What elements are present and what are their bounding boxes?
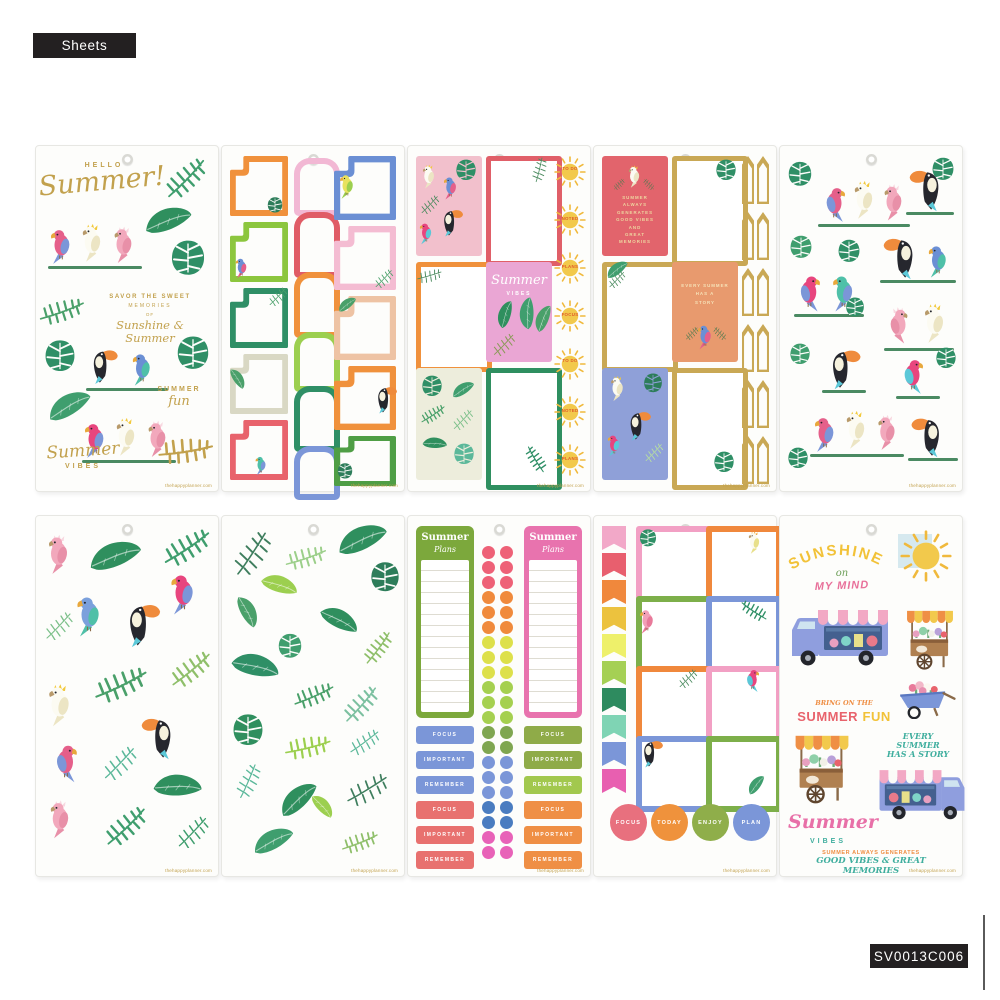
- story-line-1: EVERY SUMMER: [880, 732, 956, 750]
- plans-header-1: Summer: [416, 532, 474, 543]
- dot-stickers: [482, 786, 516, 799]
- fun-word: FUN: [863, 709, 891, 724]
- parrot-icon: [254, 456, 268, 476]
- sheet-note-boxes: FOCUS TODAY ENJOY PLAN thehappyplanner.c…: [593, 515, 777, 877]
- palm-leaf-icon: [340, 825, 381, 859]
- dot-stickers: [482, 771, 516, 784]
- monstera-leaf-icon: [786, 446, 810, 470]
- cockatoo-icon: [44, 682, 74, 730]
- dot-stickers: [482, 666, 516, 679]
- branch: [908, 458, 958, 461]
- plans-header-2: Plans: [416, 545, 474, 554]
- dot-stickers: [482, 726, 516, 739]
- sheet-gold-panels: SUMMER ALWAYS GENERATES GOOD VIBES AND G…: [593, 145, 777, 492]
- toucan-icon: [908, 166, 948, 212]
- summer-vibes-2: VIBES: [40, 463, 126, 471]
- banana-leaf-icon: [257, 565, 302, 603]
- watermark: thehappyplanner.com: [165, 483, 212, 488]
- sheet-sunshine: SUNSHINE on MY MIND BRING ON THE SUMMER …: [779, 515, 963, 877]
- coral-line: GREAT: [604, 233, 666, 237]
- cockatoo-icon: [746, 530, 762, 556]
- dot-stickers: [482, 756, 516, 769]
- label-sticker: FOCUS: [524, 801, 582, 819]
- gold-arrow-sticker: [757, 212, 769, 260]
- branch: [822, 390, 866, 393]
- monstera-leaf-icon: [642, 372, 664, 394]
- gold-arrow-sticker: [742, 212, 754, 260]
- yellow-bird-icon: [338, 174, 356, 200]
- palm-leaf-icon: [356, 629, 399, 667]
- palm-leaf-icon: [420, 404, 446, 424]
- image-edge-line: [983, 915, 985, 990]
- dot-stickers: [482, 816, 516, 829]
- parrot-icon: [900, 358, 926, 396]
- flower-cart: [902, 606, 958, 670]
- dot-stickers: [482, 576, 516, 589]
- product-gallery-image: { "page": { "top_badge": "Sheets", "sku_…: [0, 0, 1000, 1000]
- summer-fun-2: fun: [148, 395, 210, 410]
- coral-line: SUMMER: [604, 196, 666, 200]
- palm-leaf-icon: [91, 660, 150, 707]
- watermark: thehappyplanner.com: [723, 868, 770, 873]
- savor-line-1: SAVOR THE SWEET: [90, 294, 210, 301]
- my-mind-text: MY MIND: [802, 579, 882, 594]
- banana-leaf-icon: [41, 385, 97, 425]
- note-box: [706, 526, 782, 602]
- note-box: [636, 666, 712, 742]
- coral-line: ALWAYS: [604, 203, 666, 207]
- monstera-leaf-icon: [276, 632, 304, 660]
- sun-icon: [554, 348, 586, 380]
- ice-cream-truck: [876, 764, 968, 824]
- dotted-note-panel: [486, 368, 562, 490]
- banana-leaf-icon: [150, 767, 206, 804]
- palm-leaf-icon: [337, 683, 386, 725]
- toucan-icon: [638, 738, 664, 768]
- wheelbarrow: [894, 680, 956, 719]
- coral-line: AND: [604, 226, 666, 230]
- toucan-icon: [824, 346, 862, 390]
- sheet-birds-leaves: thehappyplanner.com: [35, 515, 219, 877]
- dot-stickers: [482, 741, 516, 754]
- circle-sticker: TODAY: [651, 804, 688, 841]
- toucan-icon: [882, 234, 922, 280]
- monstera-leaf-icon: [266, 196, 284, 214]
- sun-label: PLANS: [557, 456, 583, 461]
- sheet-leaves: thehappyplanner.com: [221, 515, 405, 877]
- parrot-icon: [796, 274, 823, 314]
- monstera-leaf-icon: [174, 334, 212, 372]
- dot-stickers: [482, 636, 516, 649]
- fern-leaf-icon: [348, 724, 383, 759]
- pink-cockatoo-icon: [874, 412, 899, 454]
- label-sticker: IMPORTANT: [416, 826, 474, 844]
- fern-leaf-icon: [610, 178, 628, 190]
- summer-vibes-block: Summer VIBES: [40, 442, 126, 471]
- summer-script-title: Summer!: [35, 160, 169, 202]
- toucan-icon: [140, 714, 180, 760]
- monstera-leaf-icon: [168, 238, 208, 278]
- palm-leaf-icon: [37, 289, 88, 332]
- gold-arrow-sticker: [757, 156, 769, 204]
- summer-vibes-1: Summer: [39, 439, 126, 464]
- dot-stickers: [482, 681, 516, 694]
- cockatoo-icon: [608, 374, 626, 404]
- label-sticker: IMPORTANT: [416, 751, 474, 769]
- savor-line-2: MEMORIES: [90, 304, 210, 310]
- pink-cockatoo-icon: [886, 304, 912, 348]
- flag-sticker: [602, 580, 626, 604]
- parrot-icon: [130, 352, 154, 388]
- dot-stickers: [482, 696, 516, 709]
- palm-leaf-icon: [740, 600, 768, 621]
- parrot-icon: [638, 608, 656, 636]
- watermark: thehappyplanner.com: [723, 483, 770, 488]
- dot-stickers: [482, 621, 516, 634]
- on-text: on: [830, 568, 854, 580]
- summer-fun-row: SUMMER FUN: [792, 708, 896, 726]
- circle-sticker: ENJOY: [692, 804, 729, 841]
- label-sticker: FOCUS: [416, 726, 474, 744]
- monstera-leaf-icon: [934, 346, 958, 370]
- summer-fun-1: SUMMER: [148, 386, 210, 394]
- palm-leaf-icon: [162, 528, 212, 566]
- flag-sticker: [602, 526, 626, 550]
- panel-vibes-2: VIBES: [486, 292, 552, 298]
- panel-vibes-1: Summer: [486, 274, 552, 289]
- flag-sticker: [602, 553, 626, 577]
- sun-label: TO DO: [557, 358, 583, 363]
- gold-arrow-sticker: [757, 436, 769, 484]
- banana-leaf-icon: [140, 203, 195, 237]
- banana-leaf-icon: [316, 597, 364, 643]
- plans-header-2: Plans: [524, 545, 582, 554]
- dot-stickers: [482, 561, 516, 574]
- gold-arrow-sticker: [757, 324, 769, 372]
- gold-arrow-sticker: [742, 436, 754, 484]
- pink-cockatoo-icon: [880, 182, 906, 224]
- watermark: thehappyplanner.com: [165, 868, 212, 873]
- savor-line-3: OF: [90, 312, 210, 317]
- parrot-icon: [168, 574, 198, 616]
- peach-line: EVERY SUMMER: [674, 284, 736, 288]
- summer-word: SUMMER: [797, 709, 858, 724]
- label-sticker: IMPORTANT: [524, 751, 582, 769]
- label-sticker: IMPORTANT: [524, 826, 582, 844]
- dot-stickers: [482, 831, 516, 844]
- watermark: thehappyplanner.com: [909, 483, 956, 488]
- sheet-hello-summer: HELLO Summer! SAVOR THE SWEET MEMORIES O…: [35, 145, 219, 492]
- palm-leaf-icon: [292, 677, 337, 713]
- dot-stickers: [482, 711, 516, 724]
- branch: [880, 280, 956, 283]
- label-sticker: REMEMBER: [416, 776, 474, 794]
- branch: [896, 396, 940, 399]
- punch-hole: [308, 524, 319, 535]
- fern-leaf-icon: [644, 442, 664, 462]
- gold-arrow-sticker: [757, 268, 769, 316]
- fern-leaf-icon: [176, 814, 210, 848]
- fern-leaf-icon: [374, 268, 394, 288]
- banana-leaf-icon: [309, 789, 338, 823]
- monstera-leaf-icon: [714, 158, 738, 182]
- sun-label: TO DO: [557, 166, 583, 171]
- fern-leaf-icon: [640, 178, 658, 190]
- checklist-lines: [529, 560, 577, 712]
- flag-sticker: [602, 742, 626, 766]
- gold-dotted-panel: [672, 368, 748, 490]
- monstera-leaf-icon: [368, 560, 402, 594]
- fern-leaf-icon: [452, 408, 474, 430]
- sheet-tropical-panels: Summer VIBES TO DO NOTED PLANS FOCUS TO …: [407, 145, 591, 492]
- ice-cream-truck: [788, 604, 892, 670]
- fern-leaf-icon: [492, 332, 516, 356]
- cockatoo-icon: [78, 220, 105, 267]
- note-box: [706, 736, 782, 812]
- watermark: thehappyplanner.com: [537, 868, 584, 873]
- label-sticker: REMEMBER: [416, 851, 474, 869]
- parrot-icon: [48, 228, 74, 266]
- parrot-icon: [822, 186, 848, 224]
- toucan-icon: [910, 414, 948, 458]
- monstera-leaf-icon: [420, 374, 444, 398]
- palm-leaf-icon: [166, 650, 215, 689]
- fern-leaf-icon: [44, 610, 74, 640]
- coral-line: MEMORIES: [604, 240, 666, 244]
- flag-sticker: [602, 688, 626, 712]
- summer-script: Summer: [788, 812, 868, 834]
- label-sticker: REMEMBER: [524, 776, 582, 794]
- monstera-leaf-icon: [230, 712, 266, 748]
- monstera-leaf-icon: [452, 442, 476, 466]
- pink-cockatoo-icon: [44, 532, 72, 578]
- cockatoo-icon: [920, 300, 948, 348]
- monstera-leaf-icon: [336, 462, 354, 480]
- monstera-leaf-icon: [788, 342, 812, 366]
- story-line-2: HAS A STORY: [880, 750, 956, 759]
- monstera-leaf-icon: [712, 450, 736, 474]
- pink-cockatoo-icon: [46, 798, 73, 842]
- gold-arrow-sticker: [757, 380, 769, 428]
- flag-sticker: [602, 715, 626, 739]
- dot-stickers: [482, 606, 516, 619]
- gold-arrow-sticker: [742, 156, 754, 204]
- parrot-icon: [926, 244, 950, 280]
- fern-leaf-icon: [420, 194, 440, 214]
- dot-stickers: [482, 801, 516, 814]
- monstera-leaf-icon: [786, 160, 814, 188]
- gold-arrow-sticker: [742, 380, 754, 428]
- label-sticker: REMEMBER: [524, 851, 582, 869]
- gold-arrow-sticker: [742, 324, 754, 372]
- checklist-lines: [421, 560, 469, 712]
- monstera-leaf-icon: [788, 234, 814, 260]
- watermark: thehappyplanner.com: [909, 868, 956, 873]
- cockatoo-icon: [850, 177, 877, 224]
- parrot-icon: [744, 668, 761, 694]
- branch: [818, 224, 910, 227]
- sun-label: NOTED: [557, 216, 583, 221]
- toucan-icon: [86, 342, 119, 389]
- summer-plans-panel-green: Summer Plans: [416, 526, 474, 718]
- sun-icon: [900, 530, 952, 582]
- circle-sticker: PLAN: [733, 804, 770, 841]
- sheet-summer-plans: Summer Plans Summer Plans FOCUS IMPORTAN…: [407, 515, 591, 877]
- flag-sticker: [602, 607, 626, 631]
- sheet-frames: thehappyplanner.com: [221, 145, 405, 492]
- banana-leaf-icon: [84, 536, 146, 574]
- summer-plans-panel-pink: Summer Plans: [524, 526, 582, 718]
- vibes-text: VIBES: [788, 838, 868, 846]
- dot-stickers: [482, 651, 516, 664]
- gold-arrow-sticker: [742, 268, 754, 316]
- pink-cockatoo-icon: [110, 224, 136, 267]
- parrot-icon: [812, 416, 838, 454]
- toucan-icon: [120, 600, 162, 648]
- peach-line: STORY: [674, 301, 736, 305]
- sun-label: NOTED: [557, 408, 583, 413]
- sku-badge: SV0013C006: [870, 944, 968, 968]
- toucan-icon: [438, 206, 464, 238]
- monstera-leaf-icon: [836, 238, 862, 264]
- circle-sticker: FOCUS: [610, 804, 647, 841]
- memories-text: GOOD VIBES & GREAT MEMORIES: [790, 857, 952, 877]
- flag-sticker: [602, 634, 626, 658]
- banana-leaf-icon: [332, 518, 393, 558]
- toucan-icon: [372, 384, 398, 414]
- parrot-icon: [52, 744, 80, 784]
- palm-leaf-icon: [99, 804, 153, 848]
- sun-label: FOCUS: [557, 312, 583, 317]
- banana-leaf-icon: [234, 592, 262, 632]
- peach-line: HAS A: [674, 292, 736, 296]
- parrot-icon: [234, 258, 249, 279]
- dot-stickers: [482, 846, 516, 859]
- monstera-leaf-icon: [42, 338, 78, 374]
- watermark: thehappyplanner.com: [351, 868, 398, 873]
- cockatoo-icon: [420, 162, 437, 192]
- branch: [906, 212, 954, 215]
- monstera-leaf-icon: [638, 528, 658, 548]
- coral-line: GOOD VIBES: [604, 218, 666, 222]
- story-text: EVERY SUMMER HAS A STORY: [880, 732, 956, 760]
- monstera-leaf-icon: [844, 296, 866, 318]
- label-sticker: FOCUS: [524, 726, 582, 744]
- fern-leaf-icon: [678, 668, 698, 688]
- sheets-badge: Sheets: [33, 33, 136, 58]
- palm-leaf-icon: [159, 155, 213, 200]
- parrot-icon: [418, 222, 434, 246]
- watermark: thehappyplanner.com: [351, 483, 398, 488]
- palm-leaf-icon: [282, 723, 335, 769]
- coral-panel-text: SUMMER ALWAYS GENERATES GOOD VIBES AND G…: [604, 196, 666, 245]
- watermark: thehappyplanner.com: [537, 483, 584, 488]
- flower-cart: [790, 730, 854, 804]
- fern-leaf-icon: [268, 286, 288, 306]
- parrot-icon: [696, 324, 714, 351]
- peach-panel-text: EVERY SUMMER HAS A STORY: [674, 284, 736, 305]
- toucan-icon: [624, 408, 652, 442]
- banana-leaf-icon: [248, 822, 299, 857]
- punch-hole: [866, 154, 877, 165]
- fern-leaf-icon: [227, 759, 268, 800]
- cockatoo-icon: [842, 407, 869, 454]
- coral-line: GENERATES: [604, 211, 666, 215]
- summer-fun-block: SUMMER fun: [148, 386, 210, 410]
- punch-hole: [122, 524, 133, 535]
- dot-stickers: [482, 591, 516, 604]
- flag-sticker: [602, 769, 626, 793]
- fern-leaf-icon: [344, 764, 393, 813]
- flag-sticker: [602, 661, 626, 685]
- sun-label: PLANS: [557, 264, 583, 269]
- parrot-icon: [74, 596, 104, 638]
- dot-stickers: [482, 546, 516, 559]
- plans-header-1: Summer: [524, 532, 582, 543]
- parrot-icon: [442, 176, 459, 201]
- parrot-icon: [606, 434, 622, 458]
- bring-on-text: BRING ON THE: [802, 700, 886, 707]
- fern-leaf-icon: [608, 270, 626, 288]
- punch-hole: [494, 524, 505, 535]
- label-sticker: FOCUS: [416, 801, 474, 819]
- branch: [810, 454, 904, 457]
- palm-leaf-icon: [283, 537, 329, 576]
- sheet-bird-pattern: thehappyplanner.com: [779, 145, 963, 492]
- fern-leaf-icon: [102, 744, 138, 780]
- sun-icon: [554, 156, 586, 188]
